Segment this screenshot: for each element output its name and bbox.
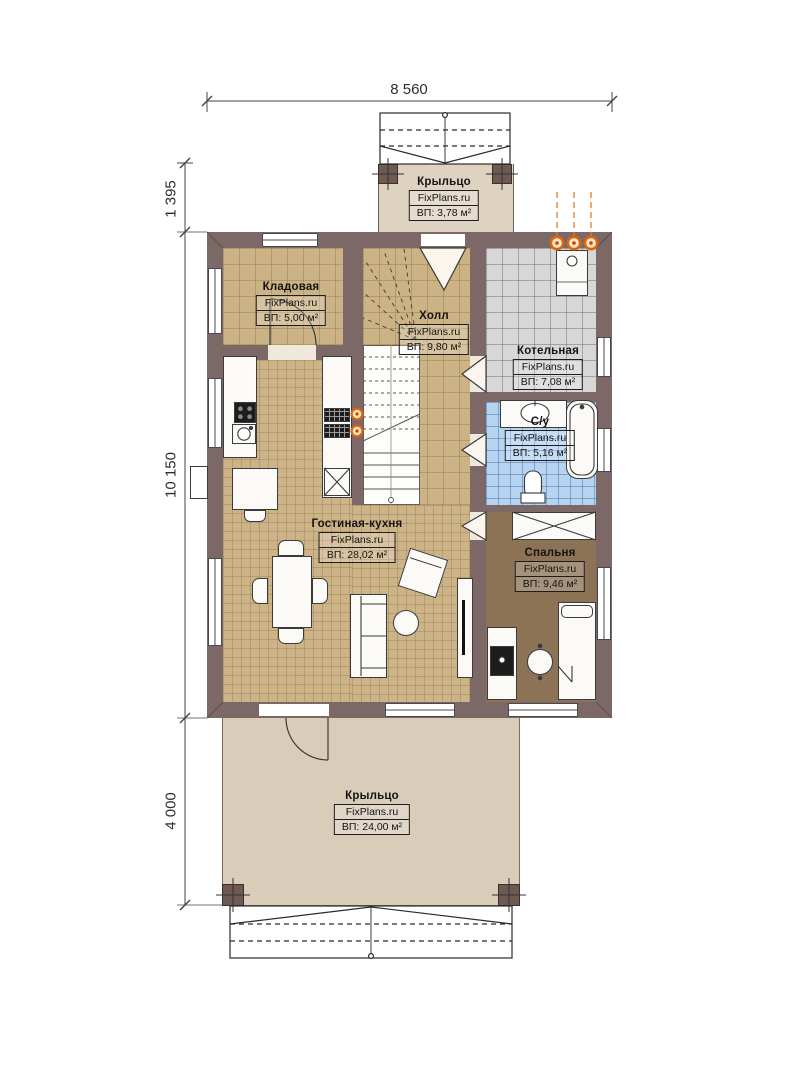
boiler-unit [556, 250, 588, 296]
dishwasher [324, 468, 350, 496]
window-bedroom-right [597, 567, 611, 640]
room-brand: FixPlans.ru [400, 325, 468, 339]
room-name: С/у [505, 416, 575, 428]
stove-left [234, 402, 256, 423]
porch-bottom-column-left [222, 884, 244, 906]
room-name: Кладовая [256, 281, 326, 293]
dimension-porch-bottom-depth: 4 000 [163, 792, 180, 830]
tv-screen [462, 600, 465, 655]
room-area: ВП: 5,00 м² [257, 310, 325, 325]
window-storage-left [208, 268, 222, 334]
gas-stove-top [324, 408, 350, 422]
desk-computer [490, 646, 514, 676]
room-brand: FixPlans.ru [514, 360, 582, 374]
kitchen-island [232, 468, 278, 510]
room-label-porch-bottom: Крыльцо FixPlans.ru ВП: 24,00 м² [334, 790, 410, 835]
dining-table [272, 556, 312, 628]
room-brand: FixPlans.ru [516, 562, 584, 576]
room-name: Гостиная-кухня [312, 518, 403, 530]
wall-stair-left [352, 360, 363, 505]
wardrobe [512, 512, 596, 540]
room-label-boiler: Котельная FixPlans.ru ВП: 7,08 м² [513, 345, 583, 390]
window-boiler-right [597, 337, 611, 377]
floor-plan: 8 560 1 395 10 150 4 000 [0, 0, 792, 1080]
dimension-overall-width: 8 560 [390, 81, 428, 98]
wall-hall-right-1 [470, 248, 486, 356]
room-brand: FixPlans.ru [335, 805, 409, 819]
tv-stand [457, 578, 473, 678]
dimension-porch-top-depth: 1 395 [163, 180, 180, 218]
room-brand: FixPlans.ru [257, 296, 325, 310]
room-name: Холл [399, 310, 469, 322]
desk-chair [527, 649, 553, 675]
bathroom-door-opening [470, 434, 486, 466]
island-stool [244, 510, 266, 522]
room-brand: FixPlans.ru [506, 431, 574, 445]
window-bedroom-bottom [508, 703, 578, 717]
wall-storage-right [343, 248, 363, 360]
room-name: Крыльцо [334, 790, 410, 802]
pouf-table [393, 610, 419, 636]
storage-door-opening [268, 345, 316, 360]
porch-top-column-left [378, 164, 398, 184]
room-brand: FixPlans.ru [410, 191, 478, 205]
room-label-living-kitchen: Гостиная-кухня FixPlans.ru ВП: 28,02 м² [312, 518, 403, 563]
room-label-storage: Кладовая FixPlans.ru ВП: 5,00 м² [256, 281, 326, 326]
bed-pillow [561, 605, 593, 618]
room-area: ВП: 28,02 м² [320, 547, 394, 562]
room-label-hall: Холл FixPlans.ru ВП: 9,80 м² [399, 310, 469, 355]
room-area: ВП: 3,78 м² [410, 205, 478, 220]
wall-bath-bottom [486, 505, 596, 512]
kitchen-sink [232, 424, 256, 444]
porch-top-roof [380, 113, 510, 164]
staircase-flight [363, 345, 420, 505]
room-area: ВП: 9,80 м² [400, 339, 468, 354]
porch-bottom-roof [230, 906, 512, 958]
window-living-left [208, 558, 222, 646]
dimension-house-depth: 10 150 [163, 452, 180, 498]
sofa [350, 594, 387, 678]
gas-stove-bottom [324, 424, 350, 438]
room-name: Крыльцо [409, 176, 479, 188]
chimney-shaft [190, 466, 208, 499]
room-area: ВП: 5,16 м² [506, 445, 574, 460]
room-area: ВП: 7,08 м² [514, 374, 582, 389]
room-label-bedroom: Спальня FixPlans.ru ВП: 9,46 м² [515, 547, 585, 592]
window-bathroom-right [597, 428, 611, 472]
boiler-door-opening [470, 356, 486, 392]
bedroom-door-opening [470, 512, 486, 540]
room-name: Спальня [515, 547, 585, 559]
entrance-door-opening [420, 233, 466, 247]
dining-chair-left [252, 578, 268, 604]
room-label-porch-top: Крыльцо FixPlans.ru ВП: 3,78 м² [409, 176, 479, 221]
room-area: ВП: 24,00 м² [335, 819, 409, 834]
window-living-bottom [385, 703, 455, 717]
room-brand: FixPlans.ru [320, 533, 394, 547]
dining-chair-right [312, 578, 328, 604]
window-storage-top [262, 233, 318, 247]
dining-chair-top [278, 540, 304, 556]
porch-bottom-column-right [498, 884, 520, 906]
wall-hall-right-2 [470, 392, 486, 434]
room-name: Котельная [513, 345, 583, 357]
porch-top-column-right [492, 164, 512, 184]
dining-chair-bottom [278, 628, 304, 644]
wall-hall-right-3 [470, 466, 486, 512]
room-label-bathroom: С/у FixPlans.ru ВП: 5,16 м² [505, 416, 575, 461]
terrace-door-opening [258, 703, 330, 717]
window-kitchen-left [208, 378, 222, 448]
room-area: ВП: 9,46 м² [516, 576, 584, 591]
